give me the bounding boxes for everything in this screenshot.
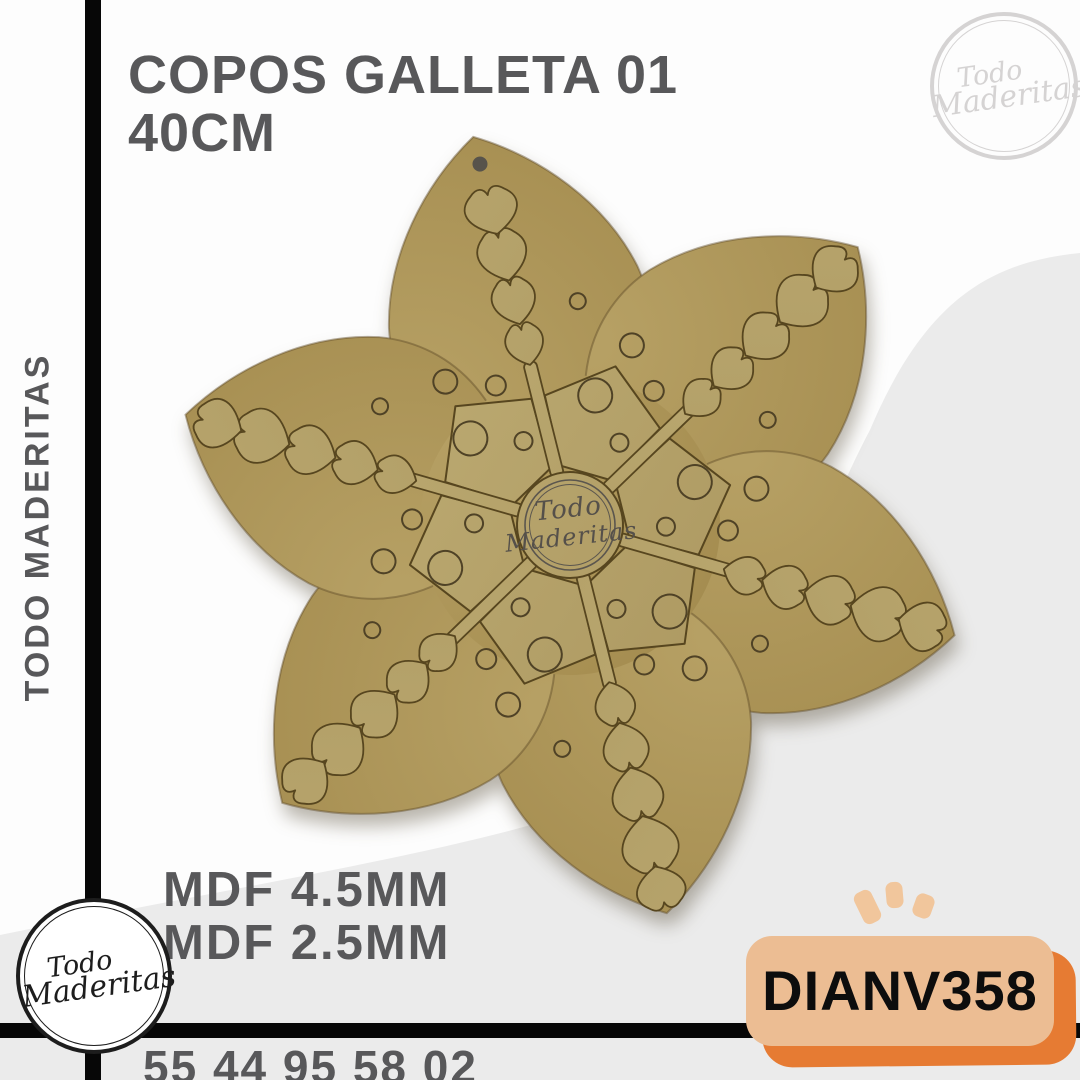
- spec-line2: MDF 2.5MM: [163, 917, 451, 970]
- vertical-brand-text: TODO MADERITAS: [19, 353, 58, 702]
- material-specs: MDF 4.5MM MDF 2.5MM: [163, 864, 451, 970]
- title-size: 40CM: [128, 104, 678, 162]
- title-line1: COPOS GALLETA 01: [128, 46, 678, 104]
- page-title: COPOS GALLETA 01 40CM: [128, 46, 678, 162]
- brand-logo-bottom-left: Todo Maderitas: [16, 898, 172, 1054]
- promo-card: Todo Maderitas COPOS GALLETA 01 40CM TOD…: [0, 0, 1080, 1080]
- brand-logo-top-right: Todo Maderitas: [930, 12, 1078, 160]
- sku-code: DIANV358: [746, 936, 1054, 1046]
- spec-line1: MDF 4.5MM: [163, 864, 451, 917]
- sparkle-ray-middle: [885, 881, 904, 908]
- phone-number: 55 44 95 58 02: [143, 1040, 478, 1080]
- sku-badge: DIANV358: [746, 936, 1054, 1046]
